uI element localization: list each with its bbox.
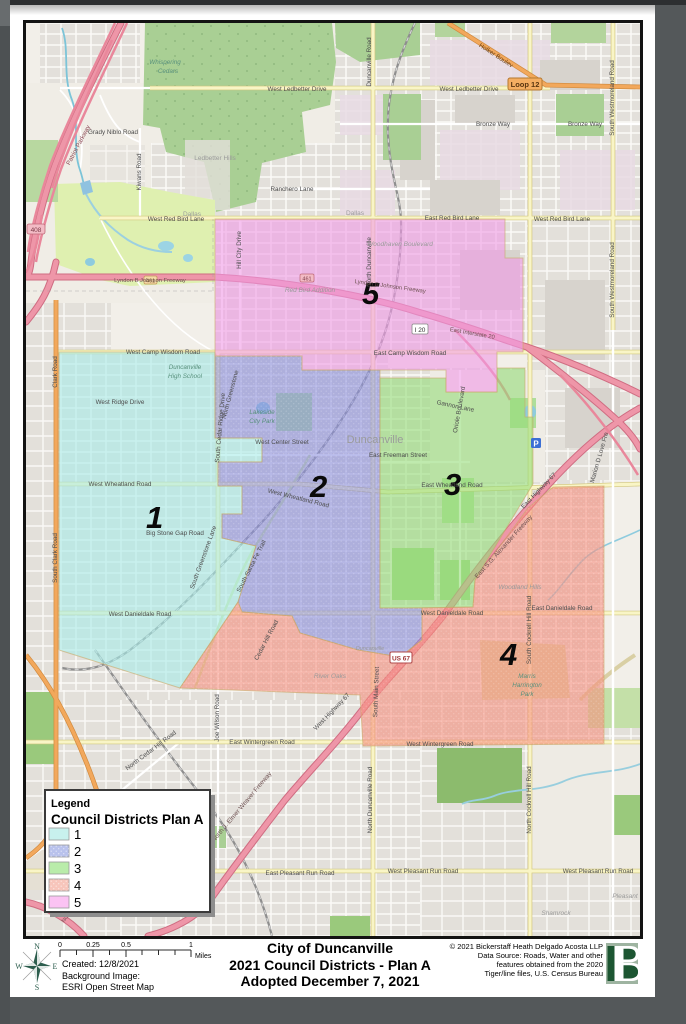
svg-text:West Pleasant Run Road: West Pleasant Run Road bbox=[563, 868, 634, 875]
svg-text:1: 1 bbox=[74, 827, 81, 842]
svg-text:South Westmoreland Road: South Westmoreland Road bbox=[609, 242, 616, 318]
svg-text:Harrington: Harrington bbox=[512, 682, 542, 689]
svg-text:Woodland Hills: Woodland Hills bbox=[498, 584, 542, 591]
svg-text:West Wintergreen Road: West Wintergreen Road bbox=[406, 741, 474, 748]
svg-text:Legend: Legend bbox=[51, 798, 90, 810]
svg-text:Bronze Way: Bronze Way bbox=[568, 121, 603, 128]
svg-text:E: E bbox=[53, 962, 58, 971]
svg-text:Kiwans Road: Kiwans Road bbox=[136, 153, 143, 191]
svg-text:Bronze Way: Bronze Way bbox=[476, 121, 511, 128]
svg-text:East Red Bird Lane: East Red Bird Lane bbox=[425, 215, 480, 222]
svg-text:Shamrock: Shamrock bbox=[541, 910, 571, 917]
svg-text:Lyndon B Johnson Freeway: Lyndon B Johnson Freeway bbox=[114, 278, 186, 284]
svg-text:US 67: US 67 bbox=[392, 656, 410, 663]
svg-text:East Danieldale Road: East Danieldale Road bbox=[532, 605, 593, 612]
svg-text:Grady Niblo Road: Grady Niblo Road bbox=[88, 129, 139, 136]
svg-text:Pleasant: Pleasant bbox=[612, 893, 638, 900]
svg-text:S: S bbox=[35, 983, 39, 992]
svg-text:Hill City Drive: Hill City Drive bbox=[236, 231, 243, 269]
svg-text:West Danieldale Road: West Danieldale Road bbox=[109, 611, 172, 618]
svg-text:2: 2 bbox=[74, 844, 81, 859]
svg-text:River Oaks: River Oaks bbox=[314, 673, 347, 680]
svg-text:North Cockrell Hill Road: North Cockrell Hill Road bbox=[526, 766, 533, 834]
svg-text:Woodhaven Boulevard: Woodhaven Boulevard bbox=[367, 241, 433, 248]
svg-text:461: 461 bbox=[302, 277, 311, 283]
svg-text:North Duncanville Road: North Duncanville Road bbox=[367, 766, 374, 833]
svg-text:Park: Park bbox=[521, 691, 535, 698]
svg-text:4: 4 bbox=[499, 637, 517, 672]
svg-text:West Ledbetter Drive: West Ledbetter Drive bbox=[439, 86, 499, 93]
svg-text:0.5: 0.5 bbox=[121, 942, 131, 949]
svg-text:408: 408 bbox=[31, 227, 42, 234]
svg-text:West Wheatland Road: West Wheatland Road bbox=[89, 481, 152, 488]
svg-text:West Red Bird Lane: West Red Bird Lane bbox=[534, 216, 591, 223]
svg-text:Marris: Marris bbox=[518, 673, 536, 680]
svg-text:W: W bbox=[15, 962, 23, 971]
svg-text:Duncanville: Duncanville bbox=[169, 364, 202, 371]
svg-text:East Pleasant Run Road: East Pleasant Run Road bbox=[266, 870, 335, 877]
svg-text:South Westmoreland Road: South Westmoreland Road bbox=[609, 60, 616, 136]
svg-text:Ranchero Lane: Ranchero Lane bbox=[270, 186, 314, 193]
svg-text:City Park: City Park bbox=[249, 418, 275, 425]
svg-text:Duncanville: Duncanville bbox=[347, 434, 404, 446]
svg-text:Red Bird Addition: Red Bird Addition bbox=[285, 287, 336, 294]
svg-text:Ledbetter Hills: Ledbetter Hills bbox=[194, 155, 236, 162]
svg-text:East Wheatland Road: East Wheatland Road bbox=[421, 482, 483, 489]
svg-text:West Pleasant Run Road: West Pleasant Run Road bbox=[388, 868, 459, 875]
svg-text:East Wintergreen Road: East Wintergreen Road bbox=[229, 739, 295, 746]
svg-text:Council Districts Plan A: Council Districts Plan A bbox=[51, 812, 204, 827]
svg-text:East Freeman Street: East Freeman Street bbox=[369, 452, 427, 459]
svg-text:P: P bbox=[533, 440, 539, 449]
svg-text:0: 0 bbox=[58, 942, 62, 949]
svg-text:Clark Road: Clark Road bbox=[52, 356, 59, 388]
svg-text:Big Stone Gap Road: Big Stone Gap Road bbox=[146, 530, 204, 537]
svg-text:Dallas: Dallas bbox=[183, 211, 202, 218]
svg-text:Cedars: Cedars bbox=[158, 68, 179, 75]
svg-text:5: 5 bbox=[74, 895, 81, 910]
svg-text:Whispering: Whispering bbox=[149, 59, 181, 66]
svg-text:Duncanville Road: Duncanville Road bbox=[366, 37, 373, 87]
svg-text:I 20: I 20 bbox=[415, 327, 426, 334]
svg-text:South Clark Road: South Clark Road bbox=[52, 533, 59, 583]
svg-text:Joe Wilson Road: Joe Wilson Road bbox=[214, 694, 221, 742]
svg-text:3: 3 bbox=[74, 861, 81, 876]
svg-text:West Ledbetter Drive: West Ledbetter Drive bbox=[267, 86, 327, 93]
svg-text:Lakeside: Lakeside bbox=[249, 409, 275, 416]
svg-text:East Camp Wisdom Road: East Camp Wisdom Road bbox=[374, 350, 447, 357]
svg-text:South Cockrell Hill Road: South Cockrell Hill Road bbox=[526, 595, 533, 664]
svg-text:1: 1 bbox=[189, 942, 193, 949]
svg-text:4: 4 bbox=[74, 878, 81, 893]
svg-text:West Center Street: West Center Street bbox=[255, 439, 309, 446]
svg-text:West Ridge Drive: West Ridge Drive bbox=[96, 399, 145, 406]
svg-text:0.25: 0.25 bbox=[86, 942, 100, 949]
svg-text:Dallas: Dallas bbox=[346, 210, 365, 217]
svg-text:West Camp Wisdom Road: West Camp Wisdom Road bbox=[126, 349, 201, 356]
svg-text:Duncanville: Duncanville bbox=[356, 646, 384, 652]
svg-text:High School: High School bbox=[168, 373, 203, 380]
svg-text:West Danieldale Road: West Danieldale Road bbox=[421, 610, 484, 617]
svg-text:Loop 12: Loop 12 bbox=[511, 80, 540, 89]
